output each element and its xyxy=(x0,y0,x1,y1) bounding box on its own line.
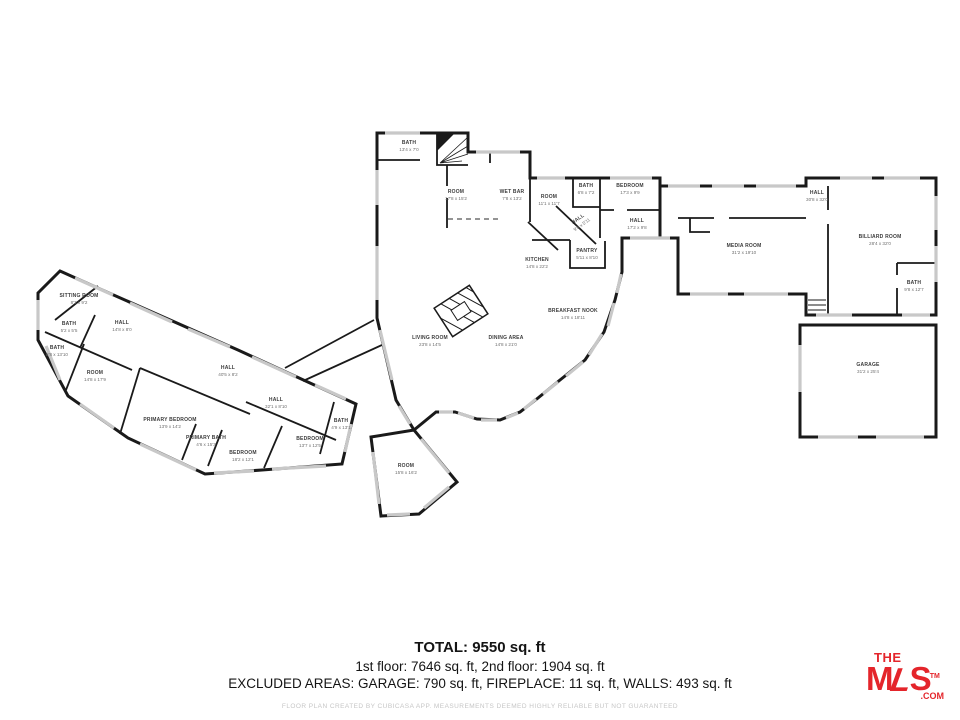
disclaimer-text: FLOOR PLAN CREATED BY CUBICASA APP. MEAS… xyxy=(0,703,960,710)
floor-plan-drawing xyxy=(0,0,960,720)
area-summary: TOTAL: 9550 sq. ft 1st floor: 7646 sq. f… xyxy=(0,639,960,693)
garage-outline xyxy=(800,325,936,437)
floor-areas-text: 1st floor: 7646 sq. ft, 2nd floor: 1904 … xyxy=(0,659,960,674)
bottom-room-outline xyxy=(371,430,457,516)
excluded-areas-text: EXCLUDED AREAS: GARAGE: 790 sq. ft, FIRE… xyxy=(0,676,960,691)
mls-logo: THE MLSTM .COM xyxy=(866,651,946,701)
wing-outline xyxy=(38,271,356,474)
total-area-text: TOTAL: 9550 sq. ft xyxy=(0,639,960,656)
floor-plan-page: BATH13'4 x 7'0ROOM17'8 x 15'2WET BAR7'8 … xyxy=(0,0,960,720)
